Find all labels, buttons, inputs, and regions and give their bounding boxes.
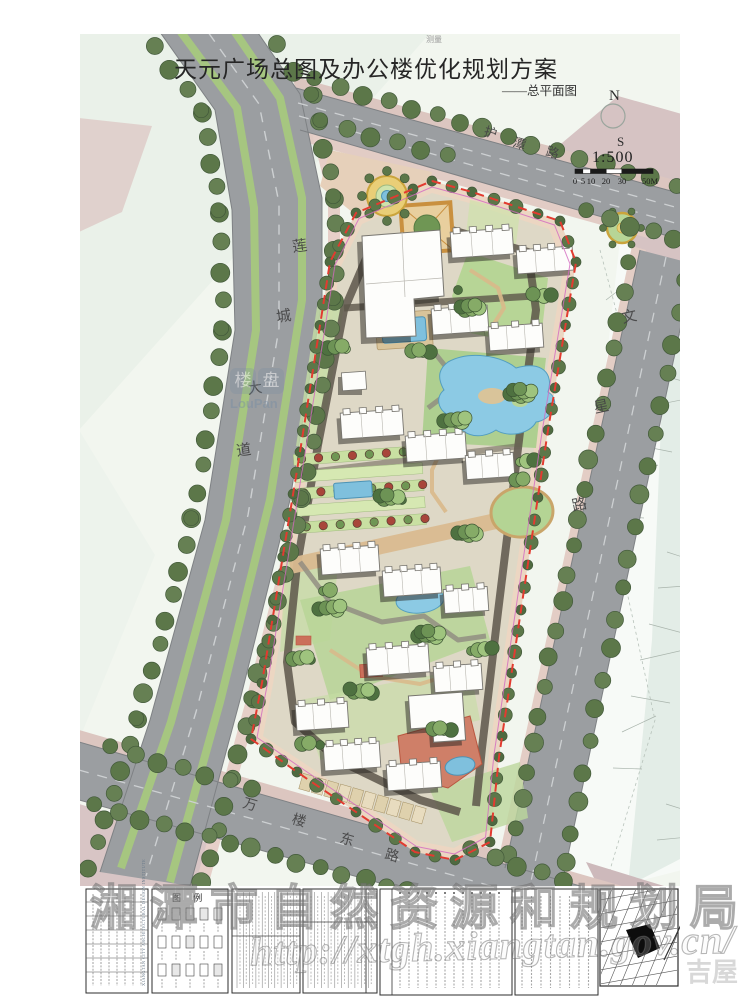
scale-tick-5: 50M [642,176,659,186]
institute-name: XIANGTAN CITY ARCHITECTURAL DESIGN INSTI… [141,859,146,986]
drawing-sheet: N S 1:500 0 5 10 20 30 50M 莲 城 大 道 护 潭 路… [0,0,756,1008]
scale-tick-0: 0 [573,176,577,186]
scale-tick-4: 30 [618,176,627,186]
compass-south-label: S [617,134,624,149]
scale-tick-2: 10 [587,176,596,186]
legend-title: 图 例 [172,892,207,903]
road-label-west: 道 [235,441,252,460]
road-label-west: 莲 [291,237,308,256]
road-label-west: 城 [275,307,292,326]
scale-ratio: 1:500 [592,149,633,166]
road-label-west: 大 [246,379,263,398]
compass-north-label: N [609,88,620,104]
scale-tick-1: 5 [581,176,585,186]
site-plan-canvas: N S 1:500 0 5 10 20 30 50M 莲 城 大 道 护 潭 路… [0,0,756,1008]
scale-tick-3: 20 [602,176,611,186]
